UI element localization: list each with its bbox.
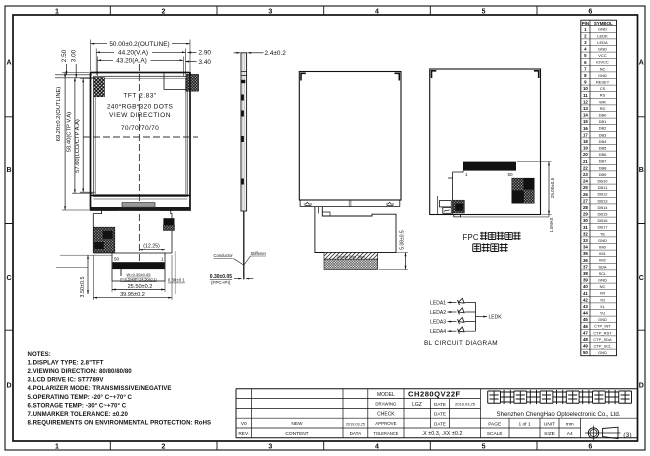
svg-text:1: 1 [55, 444, 59, 451]
svg-text:GND: GND [598, 27, 607, 32]
svg-text:WR: WR [599, 99, 606, 104]
svg-text:19: 19 [583, 146, 588, 151]
svg-text:40: 40 [583, 284, 588, 289]
svg-text:42: 42 [583, 297, 588, 302]
svg-text:DB12: DB12 [597, 192, 608, 197]
svg-text:49: 49 [583, 344, 588, 349]
svg-text:DATE: DATE [434, 421, 446, 426]
svg-text:YD: YD [600, 297, 606, 302]
svg-text:2.90: 2.90 [199, 50, 212, 57]
svg-text:CTP_SCL: CTP_SCL [593, 344, 612, 349]
svg-text:1: 1 [465, 172, 468, 177]
svg-text:41: 41 [583, 291, 588, 296]
svg-text:GND: GND [598, 73, 607, 78]
svg-text:DB7: DB7 [599, 159, 608, 164]
svg-text:V0: V0 [241, 421, 247, 427]
svg-text:REV.: REV. [238, 431, 249, 437]
svg-text:C: C [639, 275, 644, 282]
svg-text:3: 3 [268, 9, 272, 16]
svg-text:22: 22 [583, 165, 588, 170]
svg-text:LEDA3: LEDA3 [430, 320, 446, 326]
svg-text:VCC: VCC [598, 53, 607, 58]
svg-text:DB3: DB3 [599, 132, 608, 137]
svg-text:Shenzhen ChengHao Optoelectron: Shenzhen ChengHao Optoelectronic Co., Lt… [497, 411, 621, 418]
svg-text:LGZ: LGZ [412, 402, 422, 408]
svg-text:(12.25): (12.25) [143, 244, 160, 250]
svg-text:12: 12 [583, 99, 588, 104]
svg-text:24: 24 [583, 179, 588, 184]
svg-text:D: D [6, 383, 11, 390]
svg-text:C: C [6, 275, 11, 282]
svg-text:DB15: DB15 [597, 212, 608, 217]
svg-text:37: 37 [583, 264, 588, 269]
svg-text:DB13: DB13 [597, 198, 608, 203]
svg-text:CONTENT: CONTENT [285, 431, 308, 437]
svg-text:48: 48 [583, 337, 588, 342]
svg-text:LEDA2: LEDA2 [430, 310, 446, 316]
svg-text:DB10: DB10 [597, 179, 608, 184]
svg-text:69.20±0.2(OUTLINE): 69.20±0.2(OUTLINE) [56, 87, 62, 142]
svg-text:SDA: SDA [598, 264, 607, 269]
svg-text:DB4: DB4 [599, 139, 608, 144]
svg-text:LEDA1: LEDA1 [430, 300, 446, 306]
svg-text:NEW: NEW [291, 421, 303, 427]
svg-text:18: 18 [583, 139, 588, 144]
svg-text:VIEW DIRECTION: VIEW DIRECTION [109, 112, 171, 119]
svg-text:TFT 2.83”: TFT 2.83” [123, 93, 156, 100]
svg-text:50.00±0.2(OUTLINE): 50.00±0.2(OUTLINE) [109, 41, 169, 48]
svg-text:6: 6 [588, 444, 592, 451]
svg-text:44.20(V.A): 44.20(V.A) [118, 50, 148, 57]
svg-text:DB0: DB0 [599, 113, 608, 118]
svg-text:39.95±0.2: 39.95±0.2 [120, 292, 145, 298]
svg-text:25: 25 [583, 185, 588, 190]
svg-text:TOLERANCE: TOLERANCE [373, 431, 398, 436]
svg-text:DB14: DB14 [597, 205, 608, 210]
svg-text:29: 29 [583, 212, 588, 217]
svg-text:43.20(A.A): 43.20(A.A) [116, 58, 147, 65]
svg-text:XR: XR [600, 291, 606, 296]
svg-text:CTP_INT: CTP_INT [594, 324, 611, 329]
svg-text:21: 21 [583, 159, 588, 164]
svg-text:mm: mm [566, 422, 574, 427]
svg-text:IM2: IM2 [599, 258, 606, 263]
svg-text:A4: A4 [567, 431, 573, 437]
svg-text:RESET: RESET [596, 80, 610, 85]
svg-text:SYMBOL: SYMBOL [594, 21, 613, 26]
svg-text:DB8: DB8 [599, 165, 608, 170]
svg-text:FPC: FPC [463, 233, 479, 242]
svg-text:1 of 1: 1 of 1 [518, 421, 530, 427]
svg-text:B: B [639, 167, 644, 174]
svg-text:47: 47 [583, 330, 588, 335]
svg-text:SCL: SCL [599, 271, 608, 276]
svg-text:CTP_RST: CTP_RST [593, 330, 612, 335]
svg-text:26: 26 [583, 192, 588, 197]
svg-text:31: 31 [583, 225, 588, 230]
svg-text:GND: GND [598, 47, 607, 52]
svg-text:1.DISPLAY TYPE: 2.8”TFT: 1.DISPLAY TYPE: 2.8”TFT [28, 359, 104, 366]
svg-text:GND: GND [598, 278, 607, 283]
svg-text:3.00: 3.00 [71, 49, 78, 62]
svg-text:DB16: DB16 [597, 218, 608, 223]
svg-text:2.50: 2.50 [61, 49, 68, 62]
svg-text:5: 5 [482, 9, 486, 16]
svg-text:0.30±0.1: 0.30±0.1 [168, 278, 186, 283]
svg-text:MODEL: MODEL [377, 392, 395, 398]
svg-text:DB2: DB2 [599, 126, 608, 131]
svg-text:NC: NC [600, 284, 606, 289]
svg-text:50: 50 [508, 172, 514, 177]
svg-text:36: 36 [583, 258, 588, 263]
svg-text:58.40(CTP V.A): 58.40(CTP V.A) [67, 112, 73, 152]
svg-text:50: 50 [583, 350, 588, 355]
svg-text:27: 27 [583, 198, 588, 203]
svg-text:IM0: IM0 [599, 245, 606, 250]
svg-text:B: B [6, 167, 11, 174]
svg-text:4: 4 [375, 9, 379, 16]
svg-text:2019.03.25: 2019.03.25 [346, 422, 365, 426]
svg-text:DATE: DATE [434, 412, 446, 417]
svg-text:XL: XL [600, 304, 606, 309]
svg-text:240*RGB*320 DOTS: 240*RGB*320 DOTS [107, 103, 174, 110]
svg-text:17: 17 [583, 132, 588, 137]
svg-text:CHECK: CHECK [377, 411, 395, 417]
svg-text:P=0.5(49P=24.50±0.1): P=0.5(49P=24.50±0.1) [120, 277, 156, 281]
svg-text:46: 46 [583, 324, 588, 329]
svg-text:4: 4 [375, 444, 379, 451]
svg-text:DATE: DATE [434, 402, 446, 407]
svg-text:BL CIRCUIT DIAGRAM: BL CIRCUIT DIAGRAM [424, 340, 498, 347]
svg-text:D: D [639, 383, 644, 390]
svg-text:.X ±0.3, .XX ±0.2: .X ±0.3, .XX ±0.2 [422, 431, 463, 437]
svg-text:NC: NC [600, 66, 606, 71]
svg-text:A: A [6, 60, 11, 67]
svg-text:DRAWING: DRAWING [375, 402, 397, 407]
svg-text:23: 23 [583, 172, 588, 177]
svg-text:44: 44 [583, 311, 588, 316]
svg-text:DB9: DB9 [599, 172, 608, 177]
svg-text:70/70/70/70: 70/70/70/70 [121, 125, 159, 132]
svg-text:25.00±0.5: 25.00±0.5 [550, 177, 555, 198]
svg-text:LEDK: LEDK [489, 315, 503, 321]
svg-text:SCALE: SCALE [487, 431, 503, 437]
svg-text:(3): (3) [623, 432, 631, 439]
svg-text:38: 38 [583, 271, 588, 276]
svg-text:2: 2 [162, 444, 166, 451]
svg-text:1: 1 [161, 257, 164, 262]
svg-text:5.08±0.5: 5.08±0.5 [400, 230, 406, 250]
svg-text:SIZE: SIZE [544, 431, 555, 437]
svg-text:2.4±0.2: 2.4±0.2 [265, 50, 287, 57]
svg-text:39: 39 [583, 278, 588, 283]
svg-text:25.50±0.2: 25.50±0.2 [128, 284, 153, 290]
svg-text:YU: YU [600, 311, 606, 316]
svg-text:TE: TE [600, 231, 605, 236]
svg-text:Conductor: Conductor [214, 253, 234, 258]
svg-text:33: 33 [583, 238, 588, 243]
svg-text:UNIT: UNIT [544, 421, 555, 427]
svg-text:6: 6 [588, 9, 592, 16]
svg-text:RD: RD [600, 106, 606, 111]
svg-text:3.50±0.5: 3.50±0.5 [80, 277, 86, 298]
svg-text:5: 5 [482, 444, 486, 451]
svg-text:1: 1 [55, 9, 59, 16]
svg-text:3.40: 3.40 [199, 59, 212, 66]
svg-text:GND: GND [598, 317, 607, 322]
svg-text:PIN: PIN [582, 21, 589, 26]
svg-text:15: 15 [583, 119, 588, 124]
svg-text:RS: RS [600, 93, 606, 98]
svg-text:DB11: DB11 [598, 185, 608, 190]
svg-text:CTP_SDA: CTP_SDA [593, 337, 612, 342]
svg-text:20: 20 [583, 152, 588, 157]
svg-text:LEDK: LEDK [597, 33, 608, 38]
svg-text:W=0.30±0.05: W=0.30±0.05 [127, 272, 152, 277]
svg-text:Stiffener: Stiffener [251, 251, 267, 256]
svg-text:7.UNMARKER TOLERANCE: ±0.20: 7.UNMARKER TOLERANCE: ±0.20 [28, 411, 129, 418]
svg-text:APPROVE: APPROVE [375, 421, 396, 426]
svg-text:10: 10 [583, 86, 588, 91]
svg-text:3: 3 [268, 444, 272, 451]
svg-text:32: 32 [583, 231, 588, 236]
svg-text:NOTES:: NOTES: [28, 351, 51, 358]
svg-text:2019.03.25: 2019.03.25 [455, 402, 476, 407]
svg-text:2.VIEWING DIRECTION: 80/80/80/: 2.VIEWING DIRECTION: 80/80/80/80 [28, 368, 133, 375]
svg-text:LEDA4: LEDA4 [430, 329, 446, 335]
svg-text:GND: GND [598, 238, 607, 243]
svg-text:LEDA: LEDA [597, 40, 608, 45]
svg-text:28: 28 [583, 205, 588, 210]
svg-text:PAGE: PAGE [488, 421, 501, 427]
svg-text:CH280QV22F: CH280QV22F [408, 390, 461, 399]
svg-text:50: 50 [114, 257, 120, 262]
svg-text:16: 16 [583, 126, 588, 131]
svg-text:1.0MAX: 1.0MAX [549, 217, 554, 232]
svg-text:30: 30 [583, 218, 588, 223]
svg-text:13: 13 [583, 106, 588, 111]
svg-text:(FPC+PI): (FPC+PI) [211, 280, 231, 285]
svg-text:3.LCD DRIVE IC: ST7789V: 3.LCD DRIVE IC: ST7789V [28, 377, 105, 384]
svg-text:5.OPERATING TEMP: -20° C~+70°: 5.OPERATING TEMP: -20° C~+70° C [28, 394, 133, 401]
svg-text:43: 43 [583, 304, 588, 309]
svg-text:DB6: DB6 [599, 152, 608, 157]
svg-text:4.POLARIZER MODE: TRANSMISSIVE: 4.POLARIZER MODE: TRANSMISSIVE/NEGATIVE [28, 385, 172, 392]
svg-text:DB1: DB1 [599, 119, 608, 124]
svg-text:GND: GND [598, 350, 607, 355]
svg-text:DB17: DB17 [597, 225, 608, 230]
svg-text:IM1: IM1 [599, 251, 606, 256]
svg-text:2: 2 [162, 9, 166, 16]
svg-text:Double Side Tape: Double Side Tape [337, 255, 365, 259]
svg-text:14: 14 [583, 113, 588, 118]
svg-text:11: 11 [583, 93, 588, 98]
svg-text:A: A [639, 60, 644, 67]
svg-text:CS: CS [600, 86, 606, 91]
svg-text:6.STORAGE TEMP: -30° C~+70° C: 6.STORAGE TEMP: -30° C~+70° C [28, 402, 127, 409]
svg-text:DB5: DB5 [599, 146, 608, 151]
svg-text:34: 34 [583, 245, 588, 250]
svg-text:8.REQUIREMENTS ON ENVIRONMENTA: 8.REQUIREMENTS ON ENVIRONMENTAL PROTECTI… [28, 420, 212, 427]
svg-text:45: 45 [583, 317, 588, 322]
svg-text:IOVCC: IOVCC [596, 60, 609, 65]
svg-text:57.60(LCD/CTP A.A): 57.60(LCD/CTP A.A) [75, 119, 81, 173]
svg-text:35: 35 [583, 251, 588, 256]
svg-text:DATA: DATA [350, 431, 363, 436]
